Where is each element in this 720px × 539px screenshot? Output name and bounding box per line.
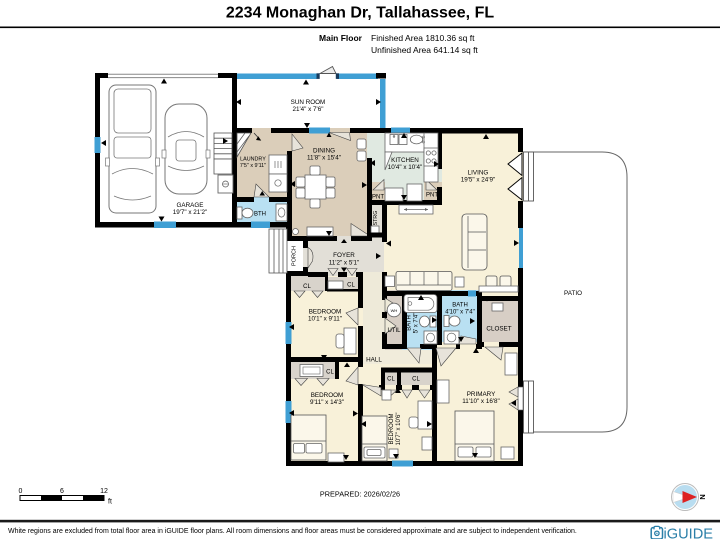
svg-text:19'7" x 21'2": 19'7" x 21'2" — [173, 209, 208, 216]
svg-text:DINING: DINING — [313, 148, 335, 155]
svg-text:ft: ft — [108, 499, 112, 506]
svg-text:2234 Monaghan Dr, Tallahassee,: 2234 Monaghan Dr, Tallahassee, FL — [226, 5, 494, 22]
svg-text:PREPARED: 2026/02/26: PREPARED: 2026/02/26 — [320, 490, 400, 499]
svg-text:STRG: STRG — [373, 211, 379, 226]
svg-text:6: 6 — [60, 488, 64, 495]
svg-text:KITCHEN: KITCHEN — [391, 157, 419, 164]
svg-text:5' x 7'4": 5' x 7'4" — [414, 313, 420, 334]
svg-text:9'11" x 14'3": 9'11" x 14'3" — [310, 399, 344, 406]
svg-text:CL: CL — [412, 377, 420, 383]
svg-text:LIVING: LIVING — [468, 170, 489, 177]
svg-text:GARAGE: GARAGE — [177, 202, 204, 209]
svg-text:CLOSET: CLOSET — [486, 326, 511, 333]
svg-text:PNT: PNT — [426, 193, 438, 199]
svg-text:12: 12 — [100, 488, 108, 495]
svg-text:WH: WH — [391, 308, 398, 313]
svg-text:10'7" x 10'6": 10'7" x 10'6" — [396, 413, 402, 446]
svg-text:Main Floor: Main Floor — [319, 33, 363, 43]
svg-text:11'10" x 16'8": 11'10" x 16'8" — [462, 398, 500, 405]
svg-text:LAUNDRY: LAUNDRY — [240, 157, 266, 163]
svg-text:PNT: PNT — [372, 195, 384, 201]
svg-text:SUN ROOM: SUN ROOM — [291, 99, 326, 106]
svg-text:CL: CL — [326, 370, 334, 376]
svg-text:PORCH: PORCH — [292, 246, 298, 266]
svg-text:iGUIDE: iGUIDE — [664, 527, 714, 539]
svg-text:PRIMARY: PRIMARY — [467, 391, 496, 398]
svg-text:Unfinished Area 641.14 sq ft: Unfinished Area 641.14 sq ft — [371, 45, 478, 55]
svg-text:N: N — [698, 494, 707, 499]
svg-text:19'5" x 24'9": 19'5" x 24'9" — [461, 177, 496, 184]
svg-text:BTH: BTH — [254, 212, 266, 218]
svg-text:11'8" x 15'4": 11'8" x 15'4" — [307, 155, 341, 162]
svg-text:CL: CL — [303, 284, 311, 290]
svg-text:BATH: BATH — [407, 315, 413, 331]
svg-text:BATH: BATH — [452, 303, 468, 309]
svg-text:UTIL: UTIL — [387, 328, 401, 334]
svg-text:PATIO: PATIO — [564, 290, 582, 297]
svg-text:10'4" x 10'4": 10'4" x 10'4" — [388, 164, 423, 171]
svg-text:CL: CL — [387, 377, 395, 383]
svg-text:White regions are excluded fro: White regions are excluded from total fl… — [8, 528, 577, 535]
svg-text:0: 0 — [19, 488, 23, 495]
svg-text:BEDROOM: BEDROOM — [309, 309, 342, 316]
svg-text:10'1" x 9'11": 10'1" x 9'11" — [308, 316, 342, 323]
svg-text:BEDROOM: BEDROOM — [311, 392, 344, 399]
svg-text:7'5" x 9'11": 7'5" x 9'11" — [240, 163, 266, 169]
svg-text:CL: CL — [347, 283, 355, 289]
svg-text:4'10" x 7'4": 4'10" x 7'4" — [445, 310, 475, 316]
svg-text:Finished Area 1810.36 sq ft: Finished Area 1810.36 sq ft — [371, 33, 475, 43]
svg-text:BEDROOM: BEDROOM — [389, 413, 395, 444]
svg-text:HALL: HALL — [366, 357, 382, 364]
svg-text:FOYER: FOYER — [333, 252, 355, 259]
svg-text:21'4" x 7'6": 21'4" x 7'6" — [292, 106, 323, 113]
svg-text:11'2" x 5'1": 11'2" x 5'1" — [329, 260, 360, 267]
